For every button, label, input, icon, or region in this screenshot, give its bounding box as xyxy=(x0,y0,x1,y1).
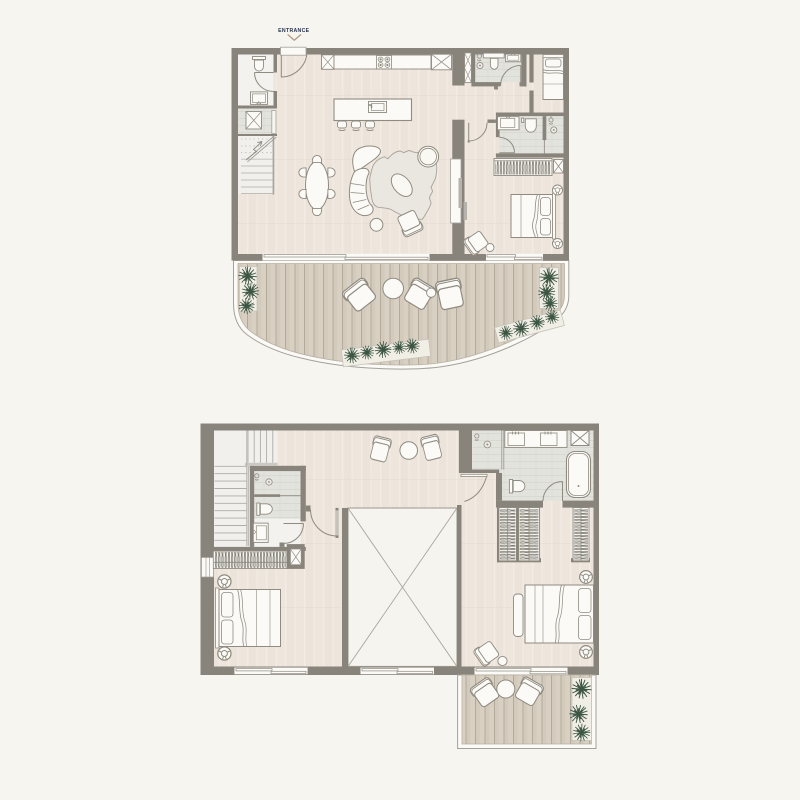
svg-text:ENTRANCE: ENTRANCE xyxy=(278,28,309,34)
